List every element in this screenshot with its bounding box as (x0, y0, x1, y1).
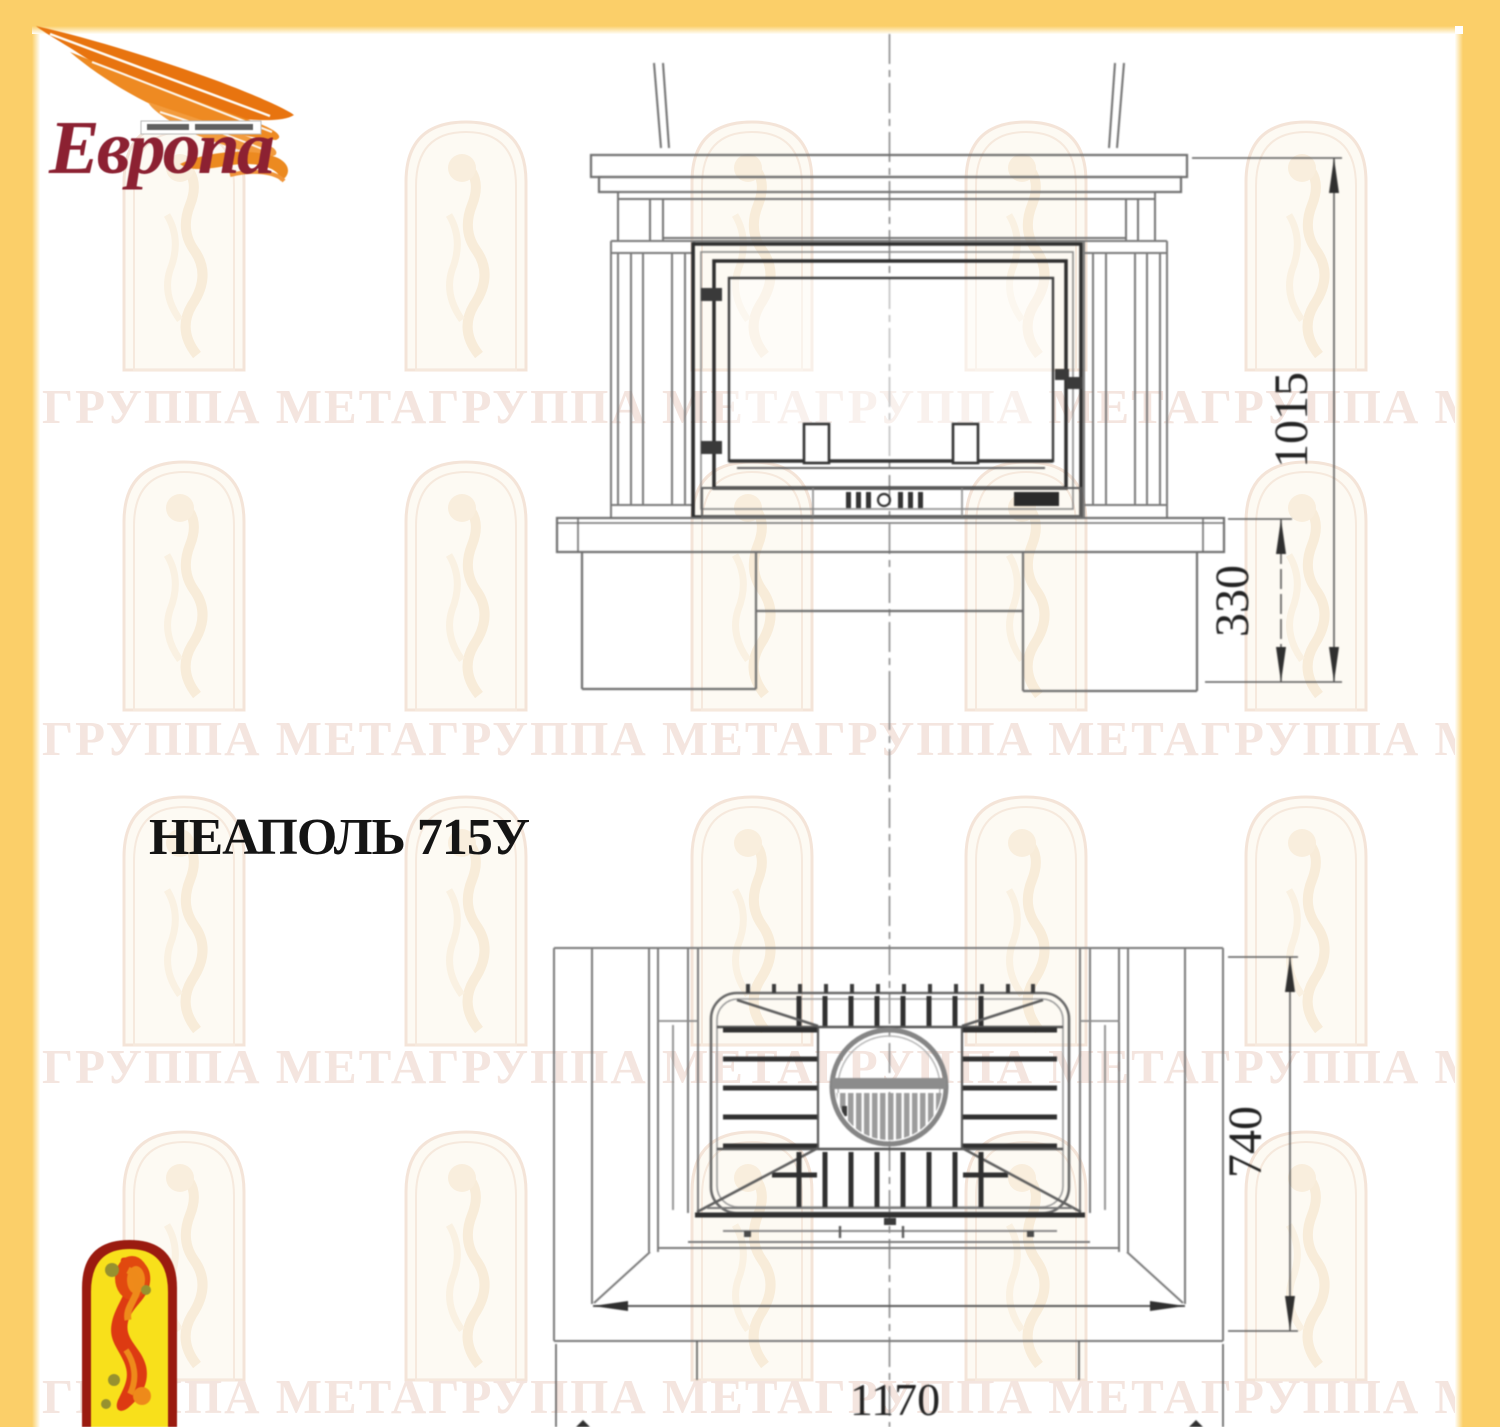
svg-text:1170: 1170 (850, 1374, 940, 1425)
svg-text:740: 740 (1219, 1106, 1272, 1178)
svg-text:1015: 1015 (1265, 372, 1318, 468)
svg-text:330: 330 (1206, 565, 1259, 637)
